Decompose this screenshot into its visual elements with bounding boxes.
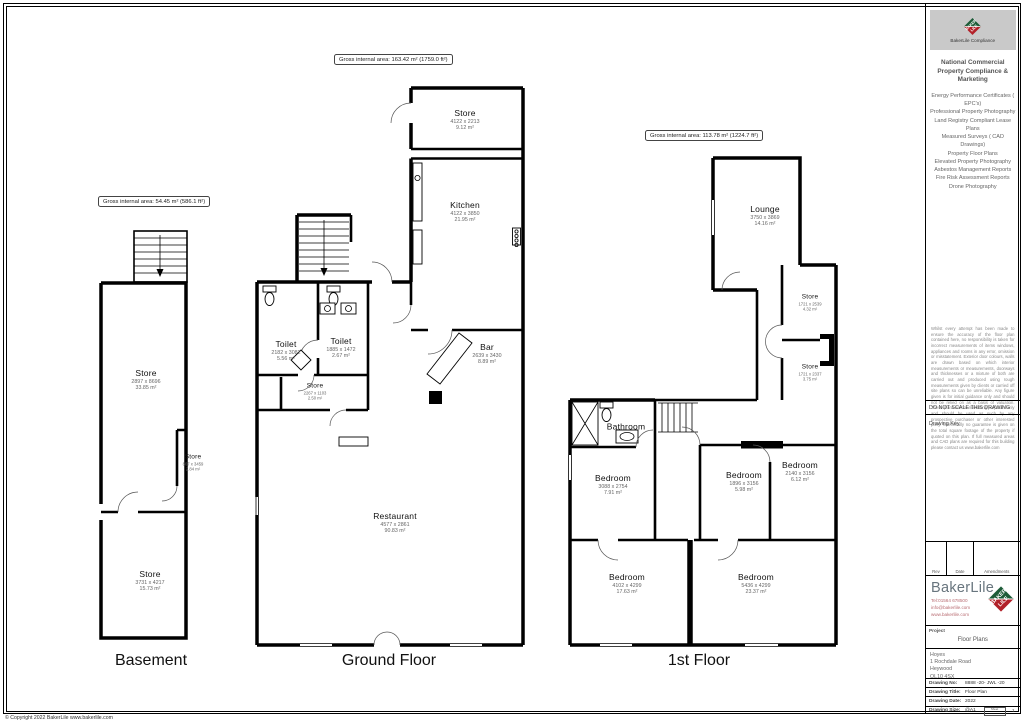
project-label: Project	[926, 626, 1020, 634]
room-label-bedroom: Bedroom 2140 x 3156 6.12 m²	[782, 460, 818, 484]
copyright-note: © Copyright 2022 BakerLile www.bakerlile…	[5, 715, 113, 721]
room-label-store: Store 4122 x 2213 9.12 m²	[450, 108, 479, 132]
room-label-bedroom: Bedroom 3088 x 2754 7.91 m²	[595, 473, 631, 497]
gia-label-basement: Gross internal area: 54.45 m² (586.1 ft²…	[98, 196, 210, 207]
room-label-store: Store 1721 x 2337 3.75 m²	[798, 364, 821, 383]
field-label: Drawing Size:	[929, 708, 965, 713]
room-label-bedroom: Bedroom 4102 x 4299 17.63 m²	[609, 572, 645, 596]
ground-floor-walls	[256, 88, 523, 647]
compliance-logo-box: BAKER LILE BakerLile Compliance	[930, 10, 1016, 50]
field-value: Floor Plan	[965, 690, 987, 695]
room-label-bathroom: Bathroom	[607, 422, 645, 433]
sheet-value: 1	[1012, 708, 1015, 713]
drawing-key-label: Drawing Key	[926, 417, 1020, 536]
floor-title-first: 1st Floor	[668, 652, 730, 670]
drawing-sheet: Gross internal area: 54.45 m² (586.1 ft²…	[0, 0, 1024, 723]
room-label-restaurant: Restaurant 4577 x 2861 90.83 m²	[373, 511, 417, 535]
room-label-lounge: Lounge 3750 x 3869 14.16 m²	[750, 204, 780, 228]
sidebar-heading: National Commercial Property Compliance …	[932, 59, 1014, 85]
drawing-info-table: Drawing No: 8888 -20- JWL -20 Drawing Ti…	[926, 678, 1020, 713]
room-label-store: Store 2897 x 8696 33.85 m²	[131, 368, 160, 392]
field-row-drawing-no: Drawing No: 8888 -20- JWL -20	[926, 678, 1020, 687]
room-label-store: Store 807 x 3459 2.84 m²	[183, 454, 204, 473]
title-block-sidebar: BAKER LILE BakerLile Compliance National…	[925, 4, 1020, 713]
room-label-store: Store 3731 x 4217 15.73 m²	[135, 569, 164, 593]
service-item: Professional Property Photography	[929, 108, 1017, 116]
room-label-bar: Bar 2639 x 3430 8.89 m²	[472, 342, 501, 366]
room-label-toilet: Toilet 2182 x 3082 5.56 m²	[271, 339, 300, 363]
address-line: Hoyes	[930, 652, 1016, 659]
field-label: Drawing Date:	[929, 699, 965, 704]
room-label-toilet: Toilet 1885 x 1472 2.67 m²	[326, 336, 355, 360]
field-row-drawing-size: Drawing Size: @A1 Sheet 1	[926, 706, 1020, 715]
compliance-caption: BakerLile Compliance	[950, 38, 995, 43]
bakerlile-diamond-icon: BAKER LILE	[963, 17, 982, 36]
room-label-store: Store 1721 x 2539 4.32 m²	[798, 294, 821, 313]
sheet-label: Sheet	[985, 708, 1005, 711]
floor-title-basement: Basement	[115, 652, 187, 670]
field-label: Drawing No:	[929, 681, 965, 686]
services-list: Energy Performance Certificates ( EPC's)…	[929, 92, 1017, 191]
service-item: Measured Surveys ( CAD Drawings)	[929, 133, 1017, 150]
address-line: Heywood	[930, 666, 1016, 673]
service-item: Energy Performance Certificates ( EPC's)	[929, 92, 1017, 109]
field-label: Drawing Title:	[929, 690, 965, 695]
service-item: Property Floor Plans	[929, 150, 1017, 158]
floorplan-drawing	[0, 0, 1024, 723]
room-label-store: Store 2267 x 1103 2.50 m²	[304, 383, 327, 402]
amendments-col-header: Amendments	[974, 542, 1020, 576]
revision-table: Rev Date Amendments	[926, 541, 1020, 576]
floor-title-ground: Ground Floor	[342, 652, 436, 670]
service-item: Asbestos Management Reports Fire Risk As…	[929, 166, 1017, 183]
do-not-scale-note: DO NOT SCALE THIS DRAWING	[926, 400, 1020, 415]
gia-label-ground: Gross internal area: 163.42 m² (1759.0 f…	[334, 54, 453, 65]
field-value: 8888 -20- JWL -20	[965, 681, 1005, 686]
date-col-header: Date	[947, 542, 974, 576]
service-item: Drone Photography	[929, 183, 1017, 191]
room-label-bedroom: Bedroom 1896 x 3156 5.98 m²	[726, 470, 762, 494]
project-section: Project Floor Plans	[926, 625, 1020, 649]
project-value: Floor Plans	[926, 637, 1020, 643]
gia-label-first: Gross internal area: 113.78 m² (1224.7 f…	[645, 130, 763, 141]
service-item: Land Registry Compliant Lease Plans	[929, 117, 1017, 134]
field-row-drawing-title: Drawing Title: Floor Plan	[926, 687, 1020, 696]
field-value: 2022	[965, 699, 976, 704]
room-label-kitchen: Kitchen 4122 x 3850 21.95 m²	[450, 200, 480, 224]
address-line: 1 Rochdale Road	[930, 659, 1016, 666]
rev-col-header: Rev	[926, 542, 947, 576]
field-value: @A1	[965, 708, 976, 713]
sheet-box: Sheet	[984, 707, 1006, 716]
field-row-drawing-date: Drawing Date: 2022	[926, 696, 1020, 705]
project-address: Hoyes 1 Rochdale Road Heywood OL10 4SX	[926, 648, 1020, 678]
service-item: Elevated Property Photography	[929, 158, 1017, 166]
bakerlile-diamond-icon: BAKER LILE	[987, 585, 1015, 613]
brand-block: BakerLile Tel:01564 678500 info@bakerlil…	[926, 575, 1020, 625]
room-label-bedroom: Bedroom 5436 x 4299 23.37 m²	[738, 572, 774, 596]
